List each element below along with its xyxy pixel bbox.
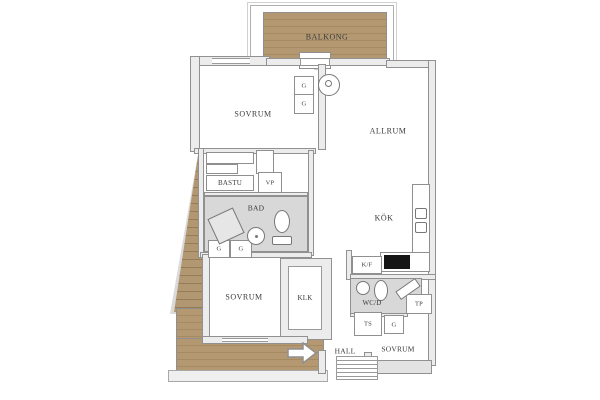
sauna-bench-lower (206, 164, 238, 174)
wall (202, 254, 210, 342)
room-label-bastu: BASTU (218, 179, 242, 187)
balcony-label: BALKONG (306, 33, 349, 42)
exterior-wall-band (168, 370, 328, 382)
toilet-mat (272, 236, 292, 245)
sauna-bench-upper (206, 152, 254, 164)
unit-label-kf: K/F (362, 262, 373, 269)
room-label-klk: KLK (298, 294, 313, 302)
unit-label-tp: TP (415, 301, 423, 308)
window (212, 58, 250, 64)
fireplace-flue (325, 80, 332, 87)
wc-sink (356, 281, 370, 295)
room-label-bad: BAD (248, 204, 264, 213)
wall (308, 150, 314, 256)
kitchen-sink (415, 222, 427, 233)
toilet (274, 210, 290, 233)
room-label-sovrum-left: SOVRUM (225, 293, 262, 302)
closet-label: G (302, 83, 307, 90)
wc-toilet (374, 280, 388, 301)
kitchen-sink (415, 208, 427, 219)
room-label-allrum: ALLRUM (370, 127, 407, 136)
kitchen-counter-right (412, 184, 430, 256)
room-label-kok: KÖK (375, 214, 394, 223)
arrow-right-icon (286, 342, 318, 364)
entry-steps (336, 356, 378, 380)
closet-label: G (217, 246, 222, 253)
unit-label-ts: TS (364, 321, 372, 328)
room-label-sovrum-top: SOVRUM (234, 110, 271, 119)
room-label-wcd: WC/D (362, 299, 381, 307)
closet-label: G (392, 322, 397, 329)
wardrobe-divider (295, 94, 313, 95)
sauna-heater (256, 150, 274, 174)
window (222, 338, 268, 342)
wall (190, 56, 200, 152)
room-label-sovrum-right: SOVRUM (381, 345, 414, 354)
floor-plan: BALKONG (0, 0, 600, 400)
stove (384, 255, 410, 269)
closet-label: G (239, 246, 244, 253)
room-label-hall: HALL (335, 347, 356, 356)
wall (318, 350, 326, 374)
unit-label-vp: VP (266, 180, 275, 187)
closet-label: G (302, 101, 307, 108)
sink-drain (255, 235, 258, 238)
